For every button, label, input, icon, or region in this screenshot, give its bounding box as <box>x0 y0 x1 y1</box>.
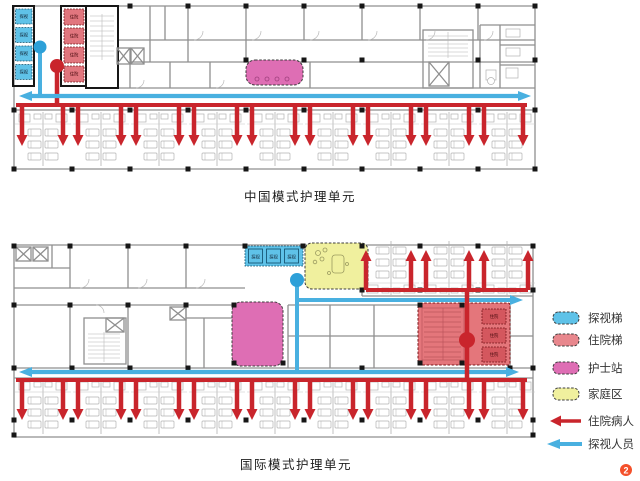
visit-box-label: 探视 <box>20 50 29 57</box>
patient-entry-dot <box>459 332 475 348</box>
visit-box-label: 探视 <box>287 254 296 261</box>
inpatient-box-label: 住院 <box>490 313 499 320</box>
visitor-entry-dot <box>290 273 304 287</box>
legend-swatch-inpatient-elevator <box>553 334 579 346</box>
legend-swatch-visitor-elevator <box>553 312 579 324</box>
fixtures <box>486 29 520 85</box>
legend-label: 住院病人 <box>588 414 634 428</box>
stair-hatch <box>88 332 120 362</box>
visitor-entry-dot <box>34 41 47 54</box>
legend-swatch-family-area <box>553 388 579 400</box>
door-arcs <box>80 279 248 368</box>
legend-label: 探视人员 <box>588 437 634 451</box>
legend-label: 探视梯 <box>588 311 623 325</box>
stair-hatch <box>90 14 114 60</box>
visit-box-label: 探视 <box>20 13 29 20</box>
visit-box-label: 探视 <box>251 254 260 261</box>
bottom-plan-title: 国际模式护理单元 <box>240 458 352 472</box>
legend-swatch-nurse-station <box>553 362 579 374</box>
diagram-canvas: 探视 探视 探视 探视 住院 住院 住院 住院 <box>0 0 640 481</box>
hospital-nursing-unit-diagram: 探视 探视 探视 探视 住院 住院 住院 住院 <box>0 0 640 481</box>
inpatient-box-label: 住院 <box>70 71 79 78</box>
legend-label: 家庭区 <box>588 387 623 401</box>
inpatient-box-label: 住院 <box>70 52 79 59</box>
patient-entry-dot <box>50 59 64 73</box>
visit-box-label: 探视 <box>269 254 278 261</box>
visit-box-label: 探视 <box>20 69 29 76</box>
visitor-elevator-boxes: 探视 探视 探视 探视 <box>16 9 33 80</box>
top-floor-plan: 探视 探视 探视 探视 住院 住院 住院 住院 <box>12 4 538 205</box>
family-area <box>305 243 368 289</box>
legend-label: 护士站 <box>588 361 623 375</box>
visit-box-label: 探视 <box>20 32 29 39</box>
stair-hatch <box>428 32 468 58</box>
inpatient-box-label: 住院 <box>70 14 79 21</box>
legend-label: 住院梯 <box>588 333 623 347</box>
inpatient-box-label: 住院 <box>490 332 499 339</box>
inpatient-elevator-boxes: 住院 住院 住院 住院 <box>64 9 84 82</box>
inpatient-box-label: 住院 <box>70 33 79 40</box>
room-bay <box>479 112 535 166</box>
inpatient-elevator-boxes: 住院 住院 住院 <box>482 309 506 362</box>
room-bay <box>479 380 535 434</box>
nurse-station-area <box>246 60 303 85</box>
bottom-floor-plan: 探视 探视 探视 住院 住院 住院 <box>12 241 536 472</box>
inpatient-box-label: 住院 <box>490 351 499 358</box>
top-plan-title: 中国模式护理单元 <box>244 189 356 204</box>
legend: 探视梯 住院梯 护士站 家庭区 住院病人 探视人员 <box>553 311 634 451</box>
badge-number: 2 <box>623 466 628 476</box>
nurse-station-area <box>232 302 283 366</box>
page-badge: 2 <box>620 464 632 476</box>
